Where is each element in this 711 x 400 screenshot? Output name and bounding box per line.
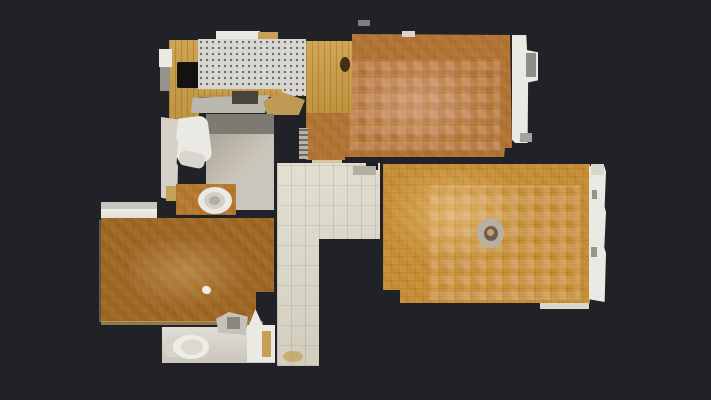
bedroom-right-corner-white [591, 164, 604, 175]
livingroom-top-notch [402, 31, 415, 37]
ceiling-lamp-dot [487, 229, 494, 236]
kitchen-left-white-bit [159, 49, 172, 67]
bedroom-left-sheen [130, 240, 250, 310]
kitchen-stove [177, 62, 199, 88]
wc-bottom-toilet-seat [181, 339, 203, 355]
hallway-floor[interactable] [277, 163, 380, 366]
livingroom-window-mark-2 [520, 133, 532, 142]
hallway-doormat [353, 166, 376, 175]
kitchen-wood-door-panel [306, 41, 352, 113]
livingroom-floor-checker [350, 60, 500, 150]
wc-nook-toilet-bowl [209, 196, 220, 205]
floorplan-canvas [0, 0, 711, 400]
livingroom-window-sill [512, 35, 538, 143]
radiator-top-band [101, 202, 157, 209]
bedroom-right-bottom-strip [540, 303, 589, 309]
bedroom-right-window-mark-2 [591, 247, 597, 257]
kitchen-left-gray-bit [160, 67, 170, 91]
hallway-floor-stain [283, 351, 303, 362]
wc-bottom-tan-strip [262, 331, 271, 357]
kitchen-tile-floor[interactable] [198, 39, 306, 96]
bedroom-right-window-mark-1 [592, 190, 597, 199]
wall-speck [358, 20, 370, 26]
bedroom-right-window-sill [589, 166, 606, 302]
kitchen-panel-knot [340, 57, 350, 72]
kitchen-appliance-dark [232, 91, 258, 104]
ladder-object [299, 128, 308, 159]
bedroom-right-checker [430, 185, 580, 300]
wc-bottom-sink-dark [227, 317, 240, 329]
bathroom-dark-band [206, 114, 274, 134]
livingroom-window-mark-1 [526, 53, 536, 77]
